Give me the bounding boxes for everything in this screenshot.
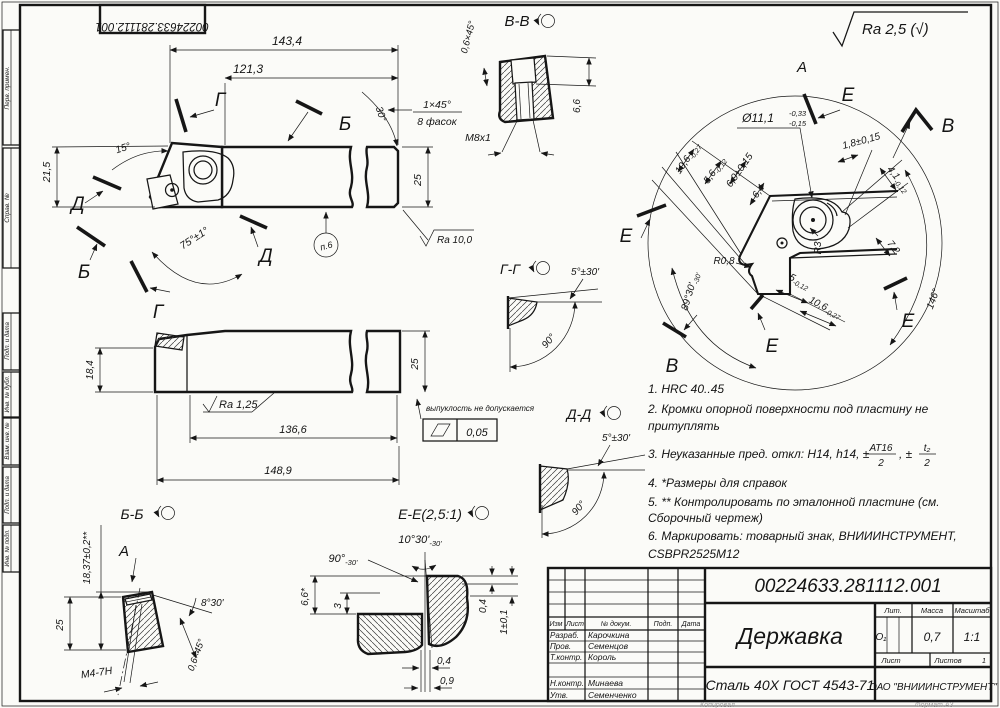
view-label-d: Д (69, 194, 84, 215)
section-ee: Е-Е(2,5:1) 10°30'-30' 90°-30' 6,6* 3 0,4… (300, 506, 518, 692)
margin-label: Инв. № подл. (4, 529, 11, 566)
title-block: Изм Лист № докум. Подп. Дата Разраб. Про… (548, 568, 997, 701)
note-2a: 2. Кромки опорной поверхности под пласти… (647, 402, 929, 416)
tb-role-0: Разраб. (550, 631, 579, 640)
tb-lit-label: Лит. (883, 606, 902, 615)
tb-name-3: Минаева (588, 678, 623, 688)
margin-label: Справ. № (4, 193, 11, 223)
note-3-frac1-num: АТ16 (869, 443, 893, 454)
note-1: 1. HRC 40..45 (648, 382, 724, 396)
section-dd: Д-Д 5°±30' 90° (540, 406, 645, 538)
dim-ee-09: 0,9 (440, 676, 454, 687)
dim-ee-04b: 0,4 (437, 656, 451, 667)
dim-a-106b: 10,6-0,27 (806, 295, 844, 323)
section-bb: Б-Б А 25 18,37±0,2** М4-7Н 8°30' 0,6×45° (55, 506, 225, 695)
dim-total-length: 143,4 (272, 34, 302, 48)
section-gg: Г-Г 5°±30' 90° (500, 261, 602, 372)
dim-angle-8930: 89°30'-30' (680, 270, 704, 312)
section-vv-title: В-В (504, 13, 529, 30)
dim-angle-tip: 30° (373, 105, 388, 123)
margin-stamps: Перв. примен. Справ. № Подп. и дата Инв.… (3, 30, 20, 572)
tb-header-izm: Изм (550, 621, 563, 628)
tb-sheets-value: 1 (982, 656, 986, 665)
drawing-sheet: Перв. примен. Справ. № Подп. и дата Инв.… (0, 0, 1000, 708)
detail-a-label: А (796, 59, 807, 76)
dim-dd-angle1: 5°±30' (602, 433, 631, 444)
flatness-tolerance: 0,05 (466, 427, 488, 439)
dim-a-18: 1,8±0,15 (841, 131, 882, 152)
dim-angle-head: 15° (114, 141, 132, 156)
dim-vv-thread: М8х1 (465, 132, 491, 144)
dim-angle-146: 146° (925, 288, 942, 311)
note-3a: 3. Неуказанные пред. откл: Н14, h14, ± (648, 447, 870, 461)
dim-a-69: 6,9±0,15 (724, 151, 756, 189)
tb-role-1: Пров. (550, 642, 571, 651)
view-label-v1: В (942, 116, 955, 137)
detail-a-pointer-label: А (118, 543, 129, 560)
corner-stamp-number: 00224633.281112.001 (95, 20, 208, 32)
margin-label: Инв. № дубл. (4, 376, 11, 413)
flatness-note: выпуклость не допускается (426, 404, 535, 413)
dim-ee-66: 6,6* (300, 587, 311, 606)
tb-sheet-label: Лист (880, 656, 900, 665)
tb-name-4: Семенченко (588, 690, 637, 700)
general-roughness: Ra 2,5 (√) (833, 12, 968, 46)
tb-part-name: Державка (734, 623, 843, 649)
tb-material: Сталь 40Х ГОСТ 4543-71 (706, 677, 875, 693)
dim-front-h2: 25 (410, 358, 421, 371)
dim-ee-04a: 0,4 (478, 599, 489, 613)
note-3-frac2-den: 2 (923, 458, 930, 469)
note-ref-text: п.6 (319, 240, 334, 253)
dim-front-l1: 136,6 (279, 424, 307, 436)
dim-dia-tol-low: -0,15 (789, 119, 807, 128)
view-label-v2: В (666, 356, 679, 377)
dim-dd-angle2: 90° (570, 499, 588, 518)
dim-a-64: 6,4 (750, 182, 767, 200)
tb-name-0: Карочкина (588, 630, 630, 640)
dim-bb-25: 25 (55, 619, 66, 632)
margin-label: Взам. инв. № (4, 422, 11, 460)
tb-mass-value: 0,7 (924, 630, 942, 644)
roughness-ra10: Ra 10,0 (437, 235, 472, 246)
dim-shank-length: 121,3 (233, 62, 263, 76)
view-label-g2: Г (153, 302, 165, 323)
tb-header-podp: Подп. (654, 620, 673, 628)
dim-dia-tol-up: -0,33 (789, 109, 807, 118)
tb-name-1: Семенцов (588, 641, 629, 651)
margin-label: Подп. и дата (5, 322, 11, 360)
dim-ee-1: 1±0,1 (499, 610, 510, 635)
tb-header-data: Дата (681, 621, 701, 628)
dim-vv-depth: 6,6 (572, 99, 583, 113)
roughness-ra125: Ra 1,25 (219, 399, 258, 411)
section-gg-title: Г-Г (500, 261, 521, 277)
tb-header-doc: № докум. (601, 620, 632, 628)
technical-notes: 1. HRC 40..45 2. Кромки опорной поверхно… (647, 382, 957, 561)
detail-boundary-circle (648, 96, 942, 390)
note-3-frac2-num: t₂ (924, 443, 931, 454)
dim-radius-r08: R0,8 (713, 256, 735, 267)
dim-bar-height: 25 (412, 174, 424, 187)
tb-company: ОАО "ВНИИИНСТРУМЕНТ" (869, 682, 997, 693)
note-6b: CSBPR2525M12 (648, 547, 740, 561)
tb-scale-value: 1:1 (964, 630, 981, 644)
note-6a: 6. Маркировать: товарный знак, ВНИИИНСТР… (648, 529, 957, 543)
tb-lit-value: О₁ (876, 632, 887, 643)
front-view: 18,4 25 Ra 1,25 136,6 148,9 выпуклость н… (85, 331, 535, 485)
dim-front-l2: 148,9 (264, 465, 292, 477)
note-5b: Сборочный чертеж) (648, 511, 763, 525)
top-view: 143,4 121,3 15° 21,5 75°±1° 30° 25 1×45°… (41, 34, 474, 323)
note-5a: 5. ** Контролировать по эталонной пласти… (648, 495, 940, 509)
tb-role-3: Н.контр. (550, 679, 584, 688)
dim-dia: Ø11,1 (741, 111, 774, 125)
dim-bb-chamfer: 0,6×45° (186, 638, 208, 673)
tb-mass-label: Масса (921, 606, 943, 615)
view-label-e2: Е (620, 226, 633, 247)
tb-role-2: Т.контр. (550, 653, 582, 662)
detail-a: А Ø11,1 -0,33 -0,15 10,6-0,27 5,6-0,1 (620, 59, 955, 390)
section-bb-title: Б-Б (121, 506, 144, 522)
dim-vv-chamfer: 0,6×45° (459, 20, 478, 55)
margin-label: Перв. примен. (4, 66, 11, 109)
dim-ee-angle2: 90°-30' (329, 553, 358, 567)
tb-sheets-label: Листов (933, 656, 961, 665)
dim-head-height: 21,5 (41, 162, 53, 184)
dim-gg-angle2: 90° (540, 332, 558, 351)
tb-scale-label: Масштаб (954, 606, 990, 615)
note-3-frac1-den: 2 (877, 458, 884, 469)
note-2b: притуплять (648, 419, 720, 433)
dim-bb-1837: 18,37±0,2** (82, 531, 93, 584)
dim-bb-thread: М4-7Н (80, 665, 113, 681)
view-label-d2: Д (257, 246, 272, 267)
dim-angle-main: 75°±1° (178, 225, 211, 252)
section-dd-title: Д-Д (565, 406, 592, 422)
tb-role-4: Утв. (549, 691, 568, 700)
dim-ee-angle1: 10°30'-30' (398, 534, 442, 548)
tb-doc-number: 00224633.281112.001 (754, 576, 941, 597)
dim-chamfer: 1×45° (423, 99, 451, 111)
note-3-mid: , ± (899, 447, 913, 461)
dim-bb-angle: 8°30' (201, 598, 225, 609)
view-label-e4: Е (766, 336, 779, 357)
view-label-e3: Е (902, 311, 915, 332)
footer-copy-label: Копировал (700, 702, 735, 708)
dim-gg-angle1: 5°±30' (571, 267, 600, 278)
dim-a-106: 10,6-0,27 (673, 140, 704, 177)
margin-label: Подп. и дата (5, 476, 11, 514)
flatness-symbol (431, 424, 450, 436)
dim-front-h1: 18,4 (85, 360, 96, 380)
view-label-b2: Б (78, 262, 90, 283)
footer-format-label: Формат А3 (915, 702, 953, 708)
tb-name-2: Король (588, 652, 616, 662)
chamfer-count: 8 фасок (417, 116, 457, 128)
tb-header-list: Лист (565, 621, 584, 628)
drawing-canvas: Перв. примен. Справ. № Подп. и дата Инв.… (0, 0, 1000, 708)
corner-stamp: 00224633.281112.001 (95, 5, 208, 33)
section-arrows-detail: Е Е Е Е В В (620, 85, 955, 377)
general-roughness-text: Ra 2,5 (√) (862, 21, 929, 38)
view-label-e1: Е (842, 85, 855, 106)
note-4: 4. *Размеры для справок (648, 476, 788, 490)
dim-radius-r3: R3 (813, 241, 824, 254)
view-label-b: Б (339, 114, 351, 135)
section-ee-title: Е-Е(2,5:1) (398, 506, 462, 522)
dim-ee-3: 3 (333, 603, 344, 609)
section-vv: В-В 0,6×45° 6,6 М8х1 (459, 13, 596, 155)
view-label-g: Г (215, 90, 227, 111)
